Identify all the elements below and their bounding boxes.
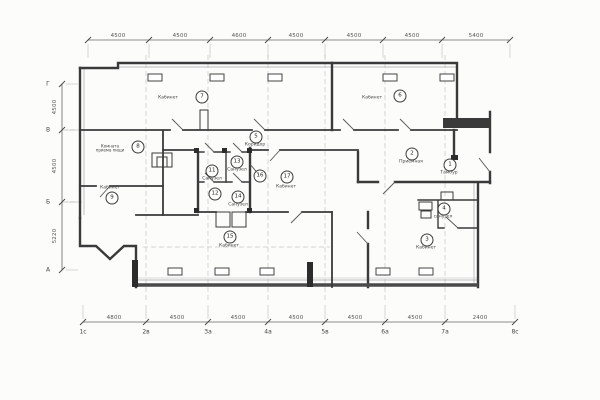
axis-bottom-2: 2в [142,329,149,336]
axis-bottom-4: 4а [264,329,272,336]
axis-left-v: В [46,127,50,134]
room-label-5: Коридор [245,144,265,149]
room-label-2: Приемная [399,161,423,166]
room-circle-12: 12 [209,188,222,201]
dim-bottom-7: 2400 [473,315,488,321]
room-label-14: Санузел [228,204,248,209]
dim-top-4: 4500 [289,33,304,39]
room-label-6: Кабинет [362,97,382,102]
axis-left-a: А [46,267,50,274]
dim-top-5: 4500 [347,33,362,39]
dim-left-1: 4500 [52,100,58,115]
room-label-3: Кабинет [416,247,436,252]
axis-bottom-5: 5в [321,329,328,336]
room-label-9: Кабинет [100,187,120,192]
room-circle-7: 7 [196,91,209,104]
axis-bottom-7: 7а [441,329,449,336]
room-label-15: Кабинет [219,245,239,250]
room-circle-6: 6 [394,90,407,103]
room-label-17: Кабинет [276,186,296,191]
axis-left-b: Б [46,199,50,206]
axis-bottom-6: 6а [381,329,389,336]
room-label-13: Санузел [227,169,247,174]
dim-bottom-6: 4500 [408,315,423,321]
floorplan-sheet: 1 2 3 4 5 6 7 8 9 11 12 13 14 15 16 17 Т… [0,0,600,400]
room-circle-15: 15 [224,231,237,244]
dim-bottom-2: 4500 [170,315,185,321]
axis-bottom-3: 3а [204,329,212,336]
floorplan-linework [0,0,600,400]
room-label-8: Комната приема пищи [95,145,125,154]
room-circle-16: 16 [254,170,267,183]
room-label-4: санузел [434,216,453,221]
dim-top-7: 5400 [469,33,484,39]
dim-bottom-1: 4800 [107,315,122,321]
room-circle-17: 17 [281,171,294,184]
dim-left-3: 5220 [52,229,58,244]
dim-top-1: 4500 [111,33,126,39]
room-label-7: Кабинет [158,97,178,102]
room-circle-9: 9 [106,192,119,205]
dim-top-6: 4500 [405,33,420,39]
room-label-11: Санузел [202,178,222,183]
dim-left-2: 4500 [52,159,58,174]
axis-bottom-8: 8с [511,329,518,336]
dim-bottom-3: 4500 [231,315,246,321]
dim-bottom-5: 4500 [348,315,363,321]
dim-top-3: 4600 [232,33,247,39]
dim-bottom-4: 4500 [289,315,304,321]
axis-left-g: Г [46,81,50,88]
room-circle-8: 8 [132,141,145,154]
dim-top-2: 4500 [173,33,188,39]
room-label-1: Тамбур [440,172,457,177]
axis-bottom-1: 1с [79,329,86,336]
